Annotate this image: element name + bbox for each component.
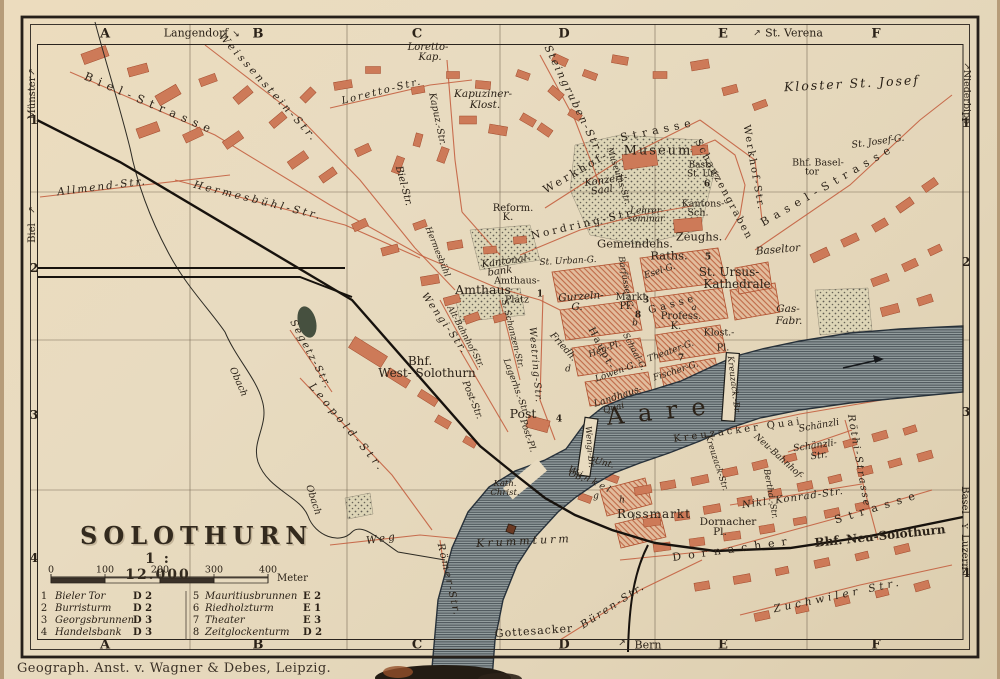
legend-name: Theater	[205, 616, 245, 626]
map-ref-marker: g	[593, 493, 599, 502]
map-label: Steingruben-Str.	[542, 44, 604, 157]
grid-row-label: 2	[962, 256, 970, 268]
map-label: K.	[671, 322, 682, 332]
legend-number: 8	[193, 628, 199, 638]
map-label: Kap.	[418, 53, 441, 63]
legend-name: Bieler Tor	[55, 592, 105, 602]
map-ref-marker: 5	[705, 254, 711, 263]
legend-grid-ref: E 3	[303, 616, 321, 626]
map-label: Röthi-Strasse	[845, 414, 871, 509]
map-label: Berthd.-Str.	[761, 468, 778, 519]
map-ref-marker: h	[619, 497, 625, 506]
publisher-credit: Geograph. Anst. v. Wagner & Debes, Leipz…	[17, 661, 331, 676]
edge-label-basel: Basel	[959, 486, 969, 514]
map-label: G.	[571, 302, 582, 313]
map-label: Kapuz.-Str.	[427, 92, 447, 146]
legend-number: 4	[41, 628, 47, 638]
map-label: Unt.	[593, 457, 615, 471]
map-label: Nikl. Konrad-Str.	[742, 487, 845, 511]
grid-row-label: 1	[30, 114, 38, 126]
scale-tick-label: 100	[96, 565, 114, 575]
map-ref-marker: 1	[537, 291, 543, 300]
grid-col-label: D	[558, 639, 569, 652]
legend-name: Zeitglockenturm	[205, 628, 289, 638]
map-label: Biel-Strasse	[82, 71, 217, 137]
map-label: Post-Pl.	[517, 418, 536, 453]
legend-grid-ref: E 2	[303, 592, 321, 602]
edge-label-luzern: Luzern	[959, 534, 969, 570]
edge-label-biel: Biel	[28, 223, 38, 243]
legend-number: 5	[193, 592, 199, 602]
map-label: seminar	[628, 216, 665, 225]
map-scale-ratio: 1 : 12.000	[116, 551, 200, 583]
map-label: Raths.	[650, 250, 687, 262]
scale-tick-label: 0	[48, 565, 54, 575]
map-label: Theater-G.	[647, 339, 696, 364]
map-label: Büren-Str.	[579, 581, 647, 630]
map-label: St. Urs	[687, 171, 719, 180]
legend-grid-ref: D 2	[133, 592, 152, 602]
map-label: Allmend-Str.	[57, 176, 148, 197]
map-ref-marker: 6	[704, 181, 710, 190]
map-label: Pl.	[713, 527, 727, 538]
map-label: Römer-Str.	[435, 542, 462, 617]
grid-col-label: D	[558, 28, 569, 41]
map-label: Pl.	[717, 343, 729, 353]
map-label: Christ.	[490, 489, 519, 498]
grid-col-label: E	[718, 28, 728, 41]
map-label: Kloster St. Josef	[784, 74, 921, 94]
direction-arrow: ↗	[618, 640, 626, 649]
map-label: Str.	[810, 450, 828, 462]
grid-row-label: 2	[30, 262, 38, 274]
map-label: Kathedrale	[703, 278, 770, 290]
map-label: Klost.-	[704, 328, 735, 338]
grid-col-label: B	[253, 639, 264, 652]
legend-grid-ref: D 2	[133, 604, 152, 614]
legend-grid-ref: D 3	[133, 616, 152, 626]
edge-label-bern: Bern	[635, 640, 662, 651]
direction-arrow: ↗	[29, 68, 38, 76]
map-label: Zeughs.	[676, 231, 723, 243]
legend-number: 7	[193, 616, 199, 626]
map-label: Wengi-Br.	[583, 426, 595, 468]
map-label: Leopold-Str.	[307, 381, 388, 474]
map-ref-marker: 3	[643, 297, 649, 306]
grid-col-label: A	[100, 639, 110, 652]
direction-arrow: ↗	[962, 62, 971, 70]
grid-col-label: F	[871, 639, 880, 652]
grid-col-label: A	[100, 28, 110, 41]
scale-unit-label: Meter	[277, 574, 308, 584]
map-label: Weg	[365, 532, 398, 547]
edge-label-st-verena: St. Verena	[765, 28, 823, 39]
map-label: Hermesbühl-Str.	[192, 180, 323, 222]
grid-col-label: E	[718, 639, 728, 652]
legend-name: Riedholzturm	[205, 604, 274, 614]
map-label: Amthaus-	[494, 276, 540, 286]
map-ref-marker: d	[565, 366, 571, 375]
map-label: Westring-Str.	[527, 327, 543, 404]
map-label: St. Urban-G.	[539, 256, 596, 268]
map-label: Basel-Strasse	[759, 142, 898, 228]
grid-row-label: 4	[30, 552, 38, 564]
legend-number: 1	[41, 592, 47, 602]
grid-col-label: B	[253, 28, 264, 41]
legend-number: 2	[41, 604, 47, 614]
scale-tick-label: 400	[259, 565, 277, 575]
map-label: Kreuzack-Str.	[703, 434, 729, 492]
map-label: Fischer-G.	[652, 360, 699, 383]
direction-arrow: ↗	[753, 30, 761, 39]
map-label: Bhf. Neu-Solothurn	[814, 523, 946, 549]
map-label: Post-Str.	[460, 379, 484, 420]
legend-name: Mauritiusbrunnen	[205, 592, 297, 602]
map-label: Dornacher	[700, 517, 757, 528]
map-ref-marker: 7	[678, 355, 684, 364]
map-label: Sch.	[688, 208, 709, 218]
map-ref-marker: b	[632, 320, 638, 329]
map-label: Friedh.	[548, 331, 578, 363]
map-label: West- Solothurn	[378, 367, 476, 379]
map-label: Krummturm	[476, 533, 572, 549]
map-sheet: Langendorf↘↗St. Verena↗Münster↗Biel↗Nied…	[0, 0, 1000, 679]
map-label: Saal	[590, 185, 613, 198]
legend-grid-ref: D 2	[303, 628, 322, 638]
legend-name: Georgsbrunnen	[55, 616, 134, 626]
map-label: Strasse	[619, 117, 696, 144]
map-label: Werkhof-Str.	[741, 124, 766, 212]
grid-row-label: 1	[962, 117, 970, 129]
map-label: Kreuzack.-Br.	[725, 356, 741, 415]
grid-row-label: 3	[30, 409, 38, 421]
map-label: Hermesbühl	[423, 226, 451, 278]
map-label: Obach	[227, 366, 248, 398]
map-ref-marker: 4	[556, 416, 562, 425]
map-label: Museum	[624, 145, 693, 158]
map-label: tor	[805, 167, 819, 177]
direction-arrow: ↘	[232, 31, 240, 40]
map-label: Neu-Bahnhof-	[752, 433, 805, 482]
map-title: SOLOTHURN	[80, 521, 250, 550]
grid-row-label: 4	[962, 567, 970, 579]
scale-tick-label: 300	[205, 565, 223, 575]
map-label: K.	[503, 213, 514, 223]
map-label: Loretto-Str.	[341, 77, 423, 107]
legend-name: Handelsbank	[55, 628, 122, 638]
grid-col-label: F	[871, 28, 880, 41]
map-label: Segetz-Str.	[287, 318, 332, 391]
legend-grid-ref: E 1	[303, 604, 321, 614]
grid-row-label: 3	[962, 406, 970, 418]
map-label: Rossmarkt	[617, 508, 691, 520]
map-label: Zuchwiler Str.	[773, 577, 904, 615]
map-label: Klost.	[470, 100, 500, 111]
legend-grid-ref: D 3	[133, 628, 152, 638]
legend-name: Burristurm	[55, 604, 111, 614]
map-label: Gas-	[776, 304, 800, 315]
grid-col-label: C	[412, 28, 422, 41]
map-label: Baseltor	[755, 243, 800, 257]
direction-arrow: ↗	[29, 206, 38, 214]
map-label: Dornacher	[672, 535, 795, 563]
map-label: Schänzli	[798, 418, 840, 434]
map-label: Kapuziner-	[454, 89, 512, 100]
map-label: Strasse	[833, 488, 923, 525]
map-label: Obach	[304, 484, 323, 516]
map-label: Biel-Str.	[393, 165, 413, 207]
map-label: Esel-G.	[643, 263, 676, 282]
legend-number: 3	[41, 616, 47, 626]
map-label: Weissenstein-Str.	[216, 32, 319, 145]
grid-col-label: C	[412, 639, 422, 652]
map-label: Fabr.	[776, 316, 803, 327]
rail-fork-icon: Y	[960, 523, 968, 528]
legend-number: 6	[193, 604, 199, 614]
